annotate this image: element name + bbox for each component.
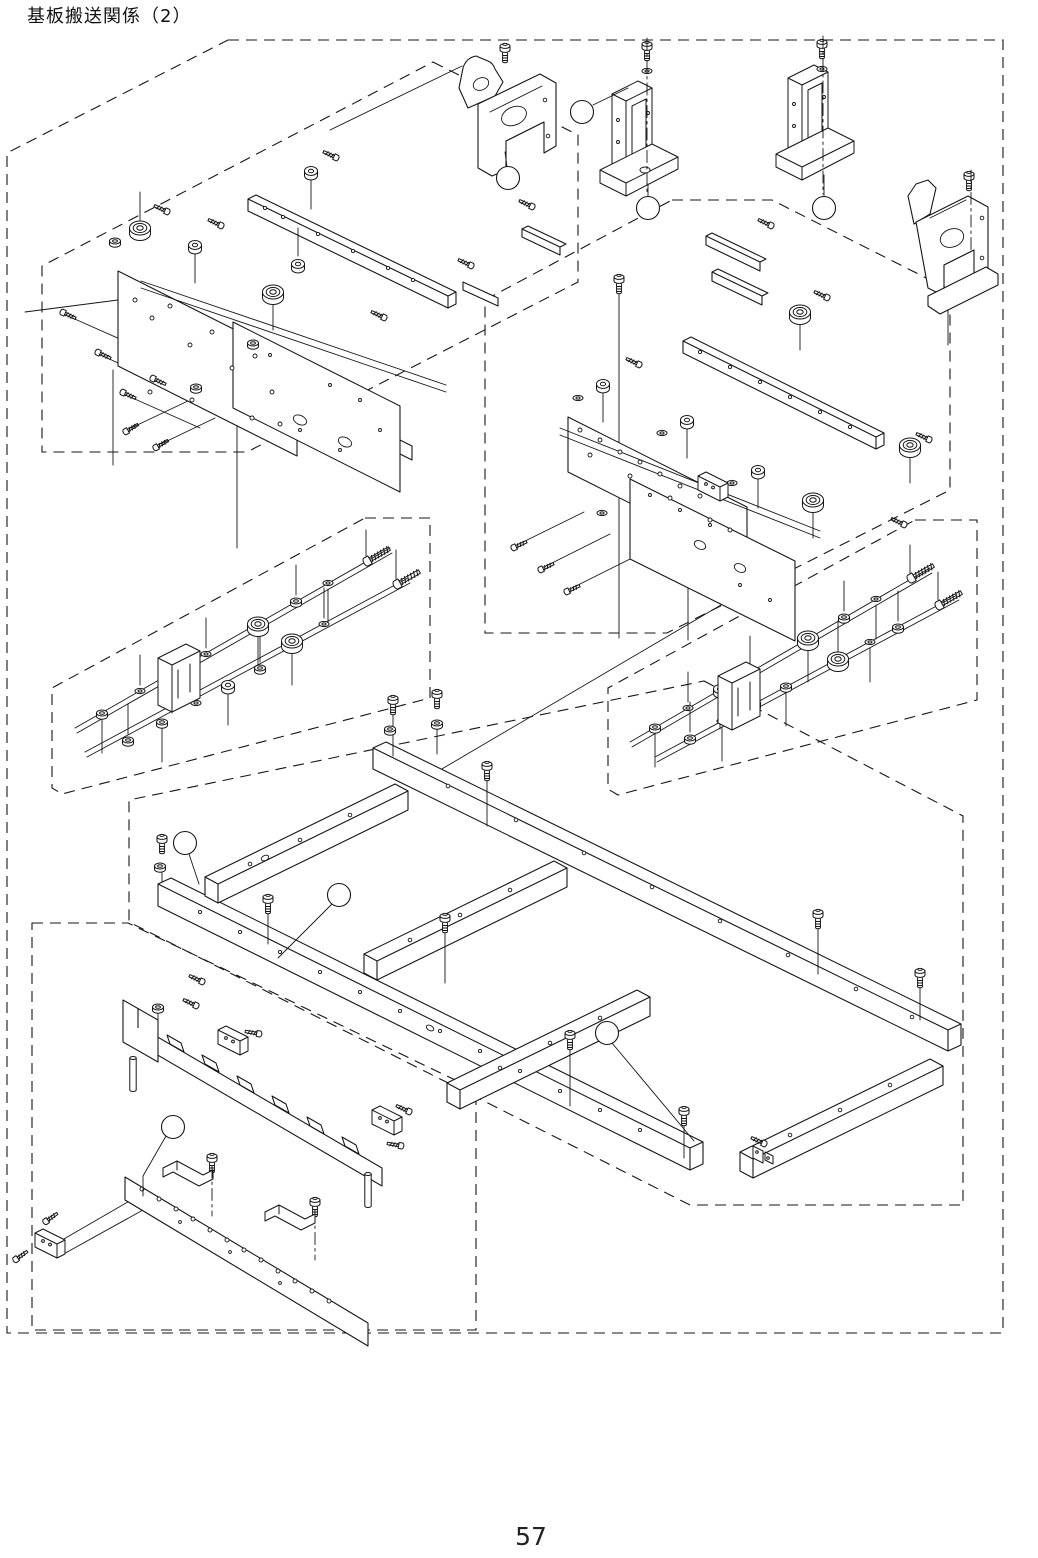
perforated-rail	[125, 1177, 368, 1346]
bolt-glyph	[432, 689, 442, 708]
rlg-glyph	[798, 631, 819, 651]
bolt-glyph	[817, 39, 827, 58]
hole	[359, 399, 362, 402]
rsm-glyph	[752, 466, 765, 480]
hole	[638, 1128, 641, 1131]
callout-balloon	[637, 197, 660, 220]
screw-glyph	[322, 149, 340, 162]
nut-glyph	[153, 1004, 164, 1013]
hole	[210, 330, 214, 334]
washer-glyph	[319, 621, 329, 626]
small-bars	[706, 233, 768, 305]
clamp-glyph	[163, 1161, 213, 1186]
leader-line	[546, 534, 610, 566]
hole	[259, 1258, 263, 1262]
toothed-rail	[125, 1018, 382, 1186]
nut-glyph	[155, 863, 166, 872]
rsm-glyph	[597, 380, 610, 394]
rlg-glyph	[248, 617, 269, 637]
hole	[728, 528, 732, 532]
manual-page: 基板搬送関係（2） 57	[0, 0, 1038, 1558]
hole	[438, 1029, 441, 1032]
hole	[157, 1197, 161, 1201]
hole	[618, 450, 622, 454]
hole	[446, 784, 450, 788]
pin-glyph	[130, 1057, 136, 1092]
hole	[293, 1279, 297, 1283]
hole	[379, 429, 382, 432]
hole	[728, 365, 731, 368]
screw-glyph	[395, 1103, 413, 1116]
center-lines	[212, 36, 971, 1260]
hole	[148, 390, 152, 394]
nut-glyph	[255, 665, 266, 674]
hole	[980, 256, 984, 260]
bolt-glyph	[500, 43, 510, 62]
rlg-glyph	[900, 438, 921, 458]
screw-glyph	[94, 349, 112, 362]
leader-line	[330, 66, 462, 130]
screw-glyph	[12, 1249, 29, 1264]
callout-leader	[143, 1136, 166, 1196]
leader-line	[131, 400, 190, 428]
rsm-glyph	[189, 241, 202, 255]
outer-boundary	[7, 40, 1003, 1333]
callout-balloon	[328, 884, 351, 907]
hole	[617, 119, 620, 122]
hole	[679, 509, 682, 512]
screw-glyph	[510, 539, 528, 552]
lower-panel	[233, 322, 412, 492]
hole	[578, 428, 582, 432]
nut-glyph	[839, 614, 850, 623]
crossbar-2	[364, 861, 567, 980]
screw-glyph	[625, 356, 643, 369]
rsm-glyph	[222, 681, 235, 695]
hole	[678, 484, 682, 488]
hole	[408, 938, 412, 942]
hole	[327, 1299, 331, 1303]
hole	[698, 350, 701, 353]
screw-glyph	[59, 309, 77, 322]
bolt-glyph	[157, 834, 167, 853]
hole	[281, 215, 284, 218]
bolt-glyph	[482, 761, 492, 780]
hole	[278, 422, 282, 426]
screw-glyph	[182, 997, 200, 1010]
hole	[854, 987, 858, 991]
hole	[793, 103, 796, 106]
screw-glyph	[207, 217, 225, 230]
screw-glyph	[153, 203, 171, 216]
hole	[739, 584, 742, 587]
hole	[558, 1089, 561, 1092]
dashed-regions	[7, 40, 1003, 1333]
hole	[250, 416, 254, 420]
page-number: 57	[515, 1522, 547, 1551]
callout-balloon	[174, 832, 197, 855]
bolt-glyph	[915, 968, 925, 987]
hole	[788, 1133, 792, 1137]
hole	[358, 990, 361, 993]
hole	[838, 1108, 842, 1112]
bolt-glyph	[679, 1106, 689, 1125]
nut-glyph	[432, 720, 443, 729]
hole	[150, 316, 154, 320]
hole	[225, 1238, 229, 1242]
hole	[910, 1015, 914, 1019]
callout-balloon	[813, 197, 836, 220]
rsm-glyph	[292, 260, 305, 274]
hole	[638, 460, 642, 464]
nut-glyph	[781, 683, 792, 692]
screw-glyph	[122, 422, 140, 436]
hole	[270, 390, 274, 394]
hole	[769, 599, 772, 602]
hole	[649, 494, 652, 497]
hole	[316, 232, 319, 235]
hole	[548, 1041, 552, 1045]
hole	[229, 1251, 232, 1254]
hole	[617, 141, 620, 144]
callout-balloon	[497, 167, 520, 190]
callout-leader	[189, 854, 199, 884]
nut-glyph	[650, 724, 661, 733]
screw-glyph	[370, 309, 388, 322]
rlg-glyph	[803, 493, 824, 513]
hole	[248, 862, 252, 866]
hole	[546, 134, 550, 138]
screw-glyph	[890, 516, 908, 529]
nut-glyph	[248, 340, 259, 349]
bracket-right	[776, 65, 854, 180]
nut-glyph	[97, 710, 108, 719]
hole	[253, 354, 257, 358]
hole	[514, 818, 518, 822]
hole	[263, 206, 266, 209]
screw-glyph	[813, 289, 831, 302]
hole	[888, 1083, 892, 1087]
hole	[980, 216, 984, 220]
hole	[310, 1289, 314, 1293]
nut-glyph	[893, 624, 904, 633]
washer-glyph	[817, 66, 827, 71]
hole	[329, 384, 332, 387]
washer-glyph	[597, 510, 607, 515]
hole	[208, 1228, 212, 1232]
washer-glyph	[201, 651, 211, 656]
hole	[508, 888, 512, 892]
hole	[238, 930, 241, 933]
hole	[133, 298, 137, 302]
leader-line	[25, 300, 118, 312]
washer-glyph	[323, 580, 333, 585]
screw-glyph	[457, 257, 475, 270]
hole	[598, 1108, 601, 1111]
hole	[498, 1066, 502, 1070]
hole	[518, 1069, 521, 1072]
rlg-glyph	[130, 221, 151, 241]
assembly-middle-right-plate-unit	[463, 226, 884, 641]
left-shafts	[75, 548, 410, 757]
screw-glyph	[563, 583, 581, 596]
bolt-glyph	[813, 909, 823, 928]
hole	[398, 1009, 401, 1012]
hole	[848, 425, 851, 428]
washer-glyph	[865, 639, 875, 644]
hole	[708, 518, 712, 522]
hole	[411, 278, 414, 281]
rlg-glyph	[790, 305, 811, 325]
screw-glyph	[119, 389, 137, 402]
hole	[339, 449, 342, 452]
part-drawings	[75, 56, 998, 1346]
leader-line	[161, 418, 215, 444]
block-glyph	[35, 1229, 65, 1258]
bolt-glyph	[614, 274, 624, 293]
callout-balloon	[596, 1022, 619, 1045]
hole	[650, 885, 654, 889]
hole	[318, 970, 321, 973]
hole	[709, 524, 712, 527]
hole	[628, 474, 632, 478]
washer-glyph	[871, 596, 881, 601]
hole	[786, 953, 790, 957]
screw-glyph	[537, 561, 555, 574]
pin-glyph	[365, 1173, 371, 1208]
nut-glyph	[685, 735, 696, 744]
screw-glyph	[152, 438, 170, 452]
leader-line	[519, 512, 584, 544]
hole	[348, 813, 352, 817]
washer-glyph	[683, 705, 693, 710]
block-glyph	[372, 1106, 402, 1135]
washer-glyph	[573, 395, 583, 400]
toothed-rail-teeth	[167, 1035, 359, 1154]
hole	[198, 910, 201, 913]
screw-glyph	[42, 1211, 59, 1226]
hole	[168, 304, 172, 308]
hole	[582, 851, 586, 855]
nut-glyph	[110, 238, 121, 247]
hole	[230, 366, 234, 370]
hole	[191, 1217, 195, 1221]
part-tick-lines	[102, 177, 938, 1158]
rlg-glyph	[263, 285, 284, 305]
rsm-glyph	[305, 167, 318, 181]
clamp-glyph	[265, 1205, 315, 1230]
hole	[299, 429, 302, 432]
callout-balloon	[162, 1116, 185, 1139]
hole	[818, 410, 821, 413]
page-title: 基板搬送関係（2）	[27, 6, 191, 27]
parts-diagram: 基板搬送関係（2） 57	[0, 0, 1038, 1558]
hole	[478, 1049, 481, 1052]
hole	[598, 1016, 602, 1020]
washer-glyph	[657, 430, 667, 435]
hole	[543, 98, 547, 102]
rear-rail	[373, 742, 961, 1051]
bolt-glyph	[964, 171, 974, 190]
assembly-upper-left-plate-unit	[118, 195, 456, 492]
hole	[668, 496, 672, 500]
rlg-glyph	[828, 652, 849, 672]
nut-glyph	[291, 598, 302, 607]
hole	[588, 453, 592, 457]
hole	[718, 919, 722, 923]
hole	[698, 494, 702, 498]
nut-glyph	[157, 719, 168, 728]
rlg-glyph	[282, 634, 303, 654]
leader-line	[435, 585, 755, 773]
nut-glyph	[191, 384, 202, 393]
hole	[788, 395, 791, 398]
hole	[188, 343, 192, 347]
hole	[278, 950, 281, 953]
hole	[658, 472, 662, 476]
assembly-bottom-left	[123, 1000, 382, 1346]
hole	[598, 438, 602, 442]
hole	[276, 1269, 280, 1273]
leader-line	[572, 556, 636, 588]
hole	[269, 354, 272, 357]
hole	[386, 266, 389, 269]
bolt-glyph	[388, 695, 398, 714]
hole	[793, 125, 796, 128]
block-glyph	[218, 1026, 248, 1055]
rsm-glyph	[681, 416, 694, 430]
lbr-glyph	[718, 662, 760, 730]
guide-rail	[683, 337, 884, 449]
hole	[179, 1221, 182, 1224]
hole	[174, 1207, 178, 1211]
hole	[279, 1282, 282, 1285]
slot-hole	[640, 167, 650, 173]
hole	[298, 838, 302, 842]
nut-glyph	[385, 726, 396, 735]
screw-glyph	[245, 1028, 263, 1037]
callout-balloon	[571, 101, 594, 124]
hole	[242, 1248, 246, 1252]
small-slabs	[463, 226, 566, 306]
hole	[351, 249, 354, 252]
nut-glyph	[123, 737, 134, 746]
screw-glyph	[387, 1140, 405, 1149]
washer-glyph	[135, 688, 145, 693]
hole	[758, 380, 761, 383]
bolt-glyph	[263, 894, 273, 913]
screw-glyph	[518, 198, 536, 211]
crossbar-1	[205, 784, 408, 903]
screw-glyph	[757, 217, 775, 230]
screw-glyph	[188, 973, 206, 986]
hole	[190, 398, 194, 402]
bracket-middle	[600, 81, 678, 196]
hole	[458, 913, 462, 917]
